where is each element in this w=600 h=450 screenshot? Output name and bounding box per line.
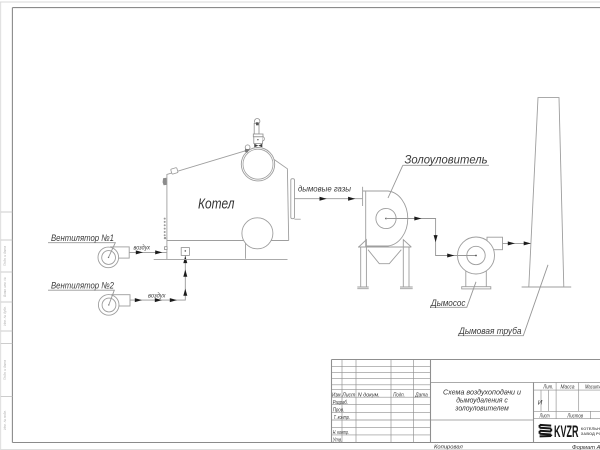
svg-text:Инв. № подл.: Инв. № подл. — [3, 410, 7, 430]
svg-text:Н. контр.: Н. контр. — [333, 430, 349, 436]
svg-text:Т. контр.: Т. контр. — [334, 415, 350, 421]
svg-text:Вентилятор №1: Вентилятор №1 — [51, 233, 114, 244]
svg-text:Изм.: Изм. — [332, 392, 342, 398]
svg-text:Утв.: Утв. — [332, 438, 342, 444]
svg-text:ЗАВОД РОС: ЗАВОД РОС — [581, 431, 600, 436]
svg-text:золоуловителем: золоуловителем — [454, 404, 508, 413]
svg-text:воздух: воздух — [134, 244, 151, 252]
svg-text:Взам. инв. №: Взам. инв. № — [3, 277, 7, 297]
svg-text:Подп.: Подп. — [393, 392, 405, 398]
svg-text:Лист: Лист — [341, 392, 355, 398]
svg-text:Масса: Масса — [561, 385, 576, 391]
svg-text:Инв. № дубл.: Инв. № дубл. — [3, 306, 7, 326]
svg-text:N докум.: N докум. — [358, 392, 380, 398]
svg-text:Подп. и дата: Подп. и дата — [3, 246, 7, 266]
svg-text:Формат А2: Формат А2 — [572, 445, 600, 450]
svg-text:дымовые газы: дымовые газы — [298, 183, 351, 193]
svg-text:Дымосос: Дымосос — [430, 298, 466, 308]
svg-text:Дата: Дата — [414, 392, 428, 398]
svg-text:И: И — [538, 399, 543, 406]
svg-text:Разраб.: Разраб. — [333, 400, 348, 406]
svg-text:Золоуловитель: Золоуловитель — [405, 153, 488, 167]
svg-text:Копировал: Копировал — [434, 444, 464, 450]
svg-text:Лит.: Лит. — [543, 385, 554, 391]
svg-text:Пров.: Пров. — [333, 407, 345, 413]
svg-text:KVZR: KVZR — [554, 423, 579, 441]
svg-text:Масштаб: Масштаб — [585, 385, 600, 391]
svg-text:Дымовая труба: Дымовая труба — [458, 326, 521, 337]
svg-text:Листов: Листов — [567, 414, 583, 420]
svg-text:Подп. и дата: Подп. и дата — [3, 360, 7, 380]
svg-text:воздух: воздух — [148, 292, 166, 300]
svg-text:Лист: Лист — [539, 414, 550, 420]
svg-text:Котел: Котел — [198, 196, 235, 213]
svg-text:Вентилятор №2: Вентилятор №2 — [51, 281, 115, 292]
